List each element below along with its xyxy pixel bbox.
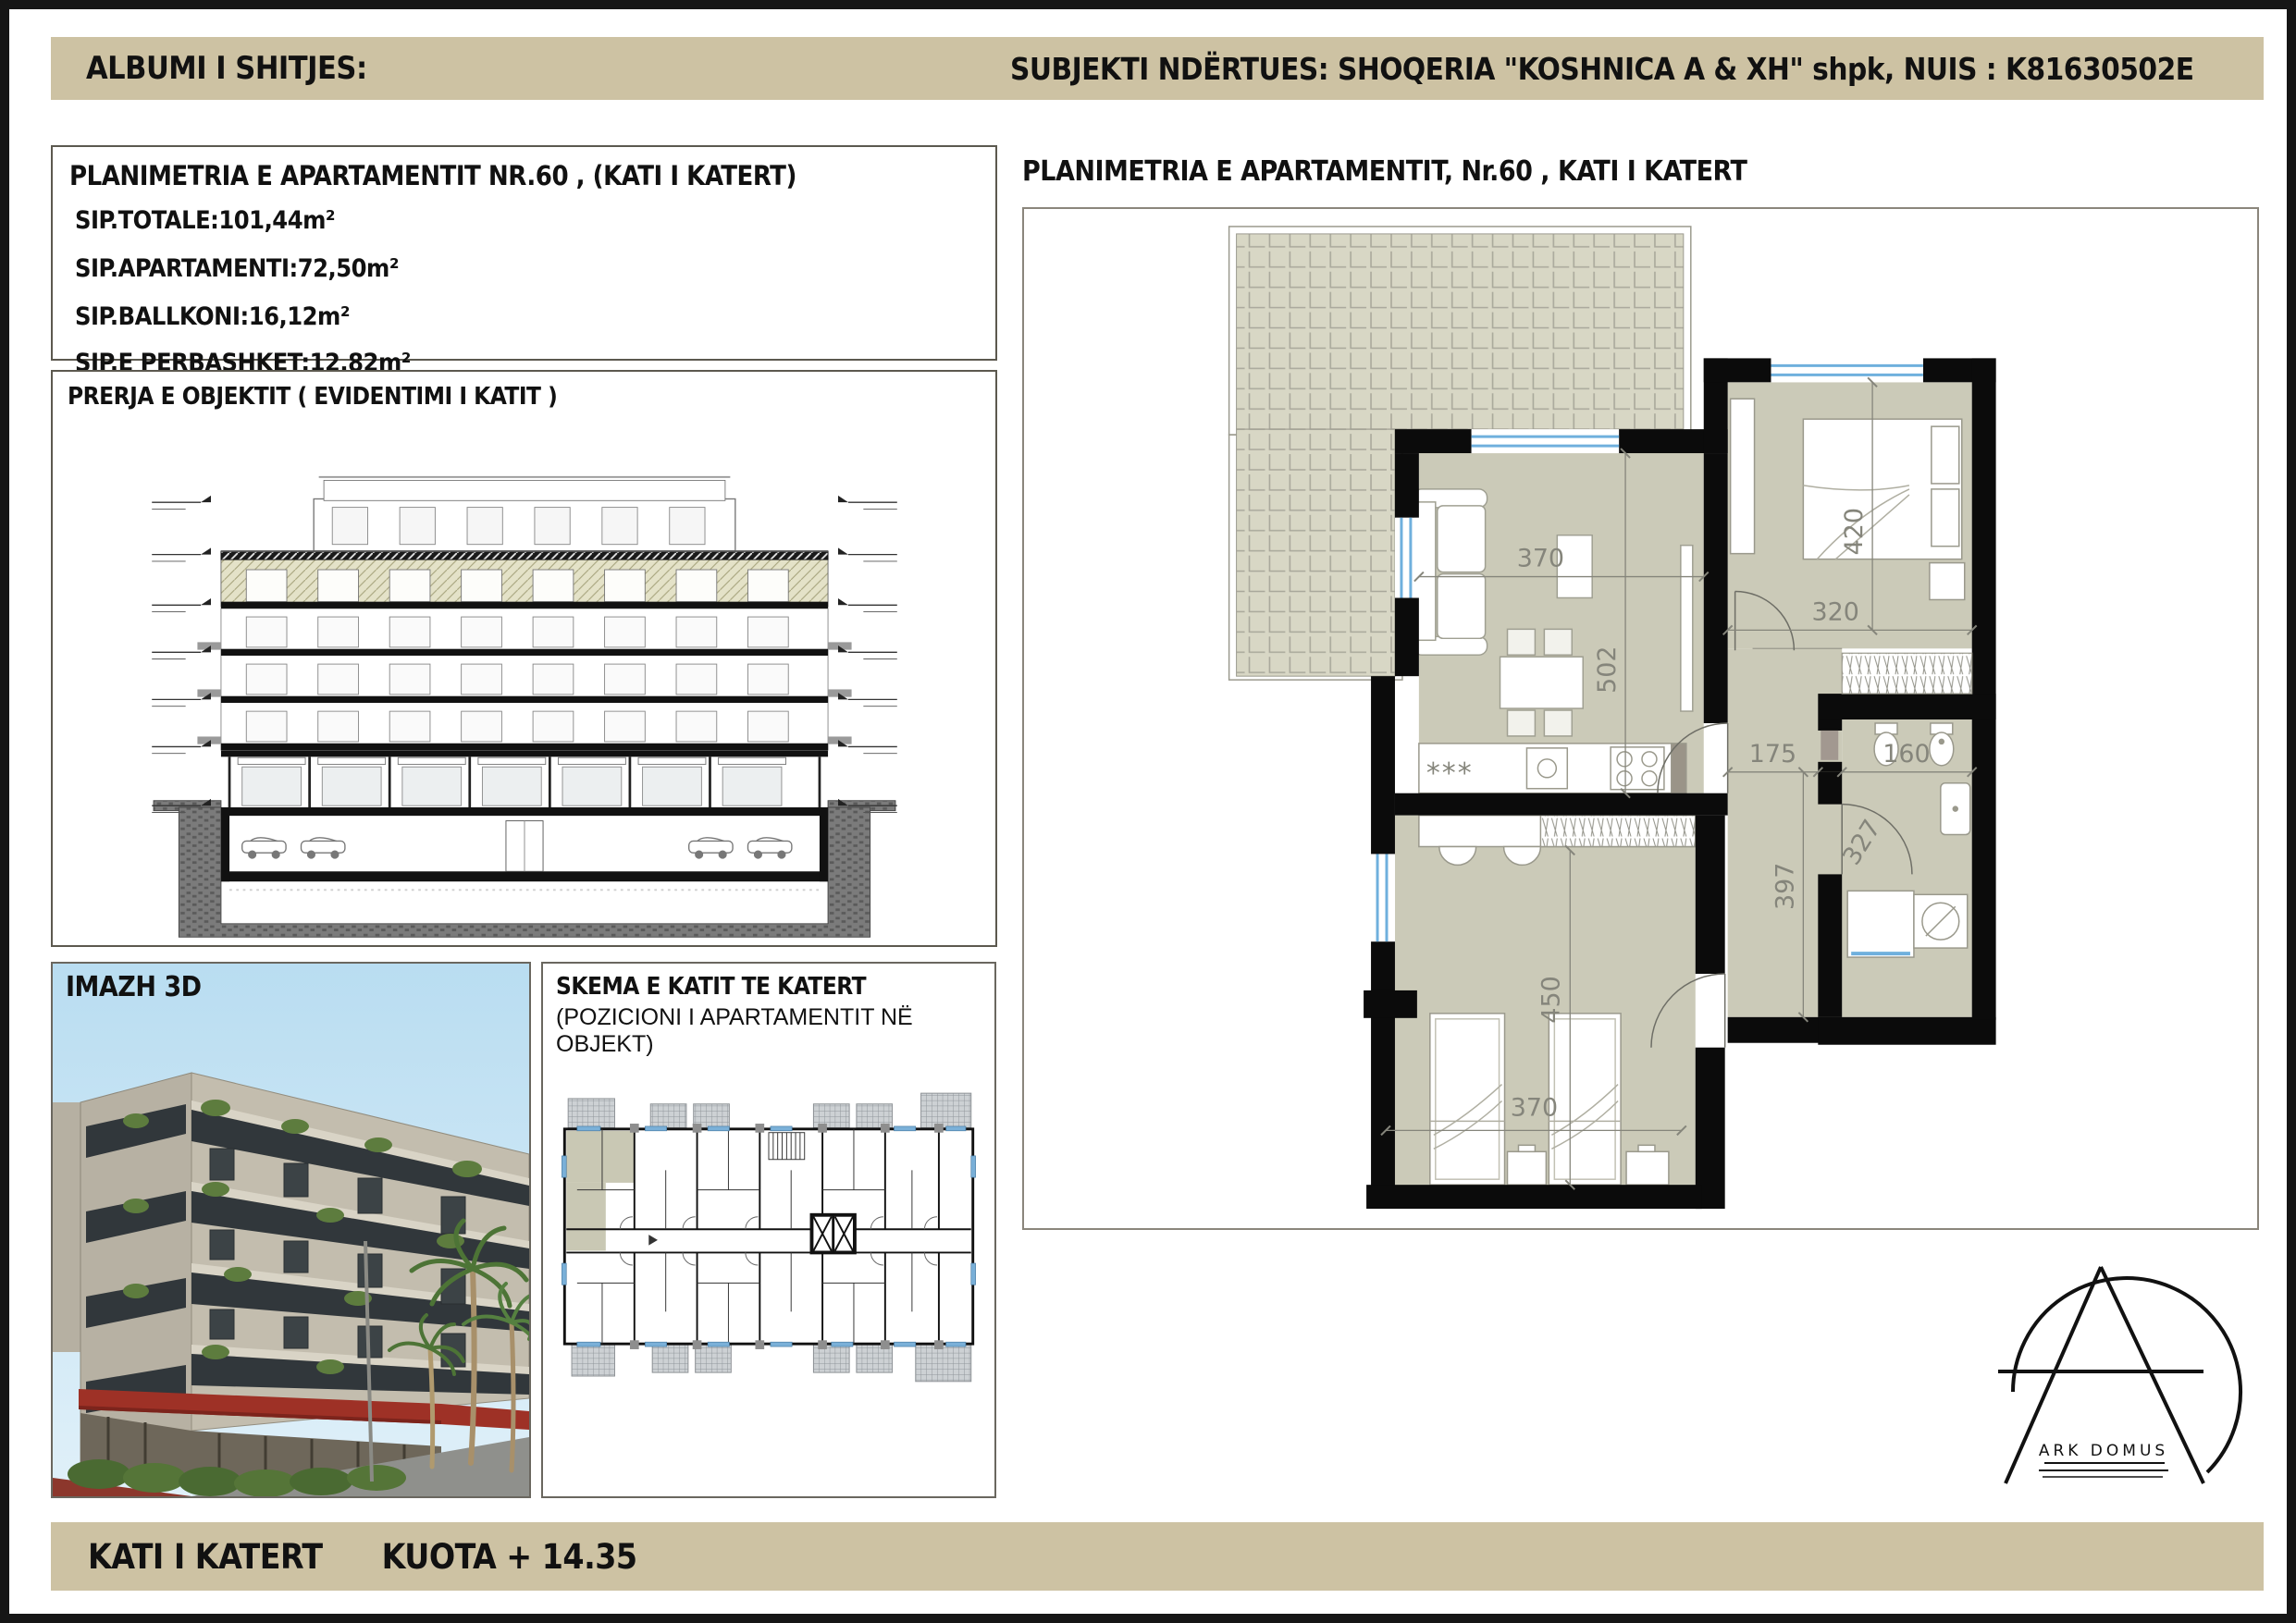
sofa xyxy=(1413,489,1487,655)
header-bar: ALBUMI I SHITJES: SUBJEKTI NDËRTUES: SHO… xyxy=(51,37,2264,100)
penthouse-roof xyxy=(221,477,828,551)
apartment-info-box: PLANIMETRIA E APARTAMENTIT NR.60 , (KATI… xyxy=(51,145,997,361)
render-3d-box: IMAZH 3D xyxy=(51,962,531,1498)
ark-domus-logo: ARK DOMUS xyxy=(1987,1241,2265,1518)
dim-hall-depth: 397 xyxy=(1771,863,1799,910)
area-balcony: SIP.BALLKONI:16,12m² xyxy=(75,302,350,331)
area-apartment: SIP.APARTAMENTI:72,50m² xyxy=(75,254,399,283)
footer-bar: KATI I KATERTKUOTA + 14.35 xyxy=(51,1522,2264,1591)
schema-title: SKEMA E KATIT TE KATERT xyxy=(556,973,866,1001)
floor-schema-drawing xyxy=(545,1084,993,1389)
single-bed xyxy=(1430,1014,1505,1185)
elevator-icon xyxy=(811,1215,854,1253)
apartment-plan-box: *** xyxy=(1022,207,2259,1230)
wardrobe-hatched xyxy=(1842,653,1971,694)
building-section-box: PRERJA E OBJEKTIT ( EVIDENTIMI I KATIT ) xyxy=(51,370,997,947)
typical-floors xyxy=(197,609,851,750)
footer-elevation-label: KUOTA + 14.35 xyxy=(382,1537,637,1577)
single-bed xyxy=(1549,1014,1621,1185)
wc-door-leaf xyxy=(1821,731,1838,760)
plan-title: PLANIMETRIA E APARTAMENTIT, Nr.60 , KATI… xyxy=(1022,155,1747,188)
dim-living-width: 370 xyxy=(1517,545,1564,573)
logo-text: ARK DOMUS xyxy=(2039,1442,2168,1460)
bedroom1-shelf xyxy=(1731,399,1755,553)
dim-bedroom2-width: 370 xyxy=(1511,1093,1558,1122)
building-section-drawing xyxy=(62,418,987,941)
dim-bedroom2-depth: 450 xyxy=(1537,976,1565,1023)
building-3d-render xyxy=(53,964,529,1496)
dim-bedroom1-width: 320 xyxy=(1812,597,1859,626)
dim-bedroom1-depth: 420 xyxy=(1840,508,1869,555)
section-title: PRERJA E OBJEKTIT ( EVIDENTIMI I KATIT ) xyxy=(68,383,557,411)
shower-tray-icon xyxy=(1847,891,1914,957)
album-sheet: ALBUMI I SHITJES: SUBJEKTI NDËRTUES: SHO… xyxy=(0,0,2296,1623)
tv-cabinet xyxy=(1681,546,1693,711)
stairs-icon xyxy=(769,1133,805,1160)
schema-subtitle: (POZICIONI I APARTAMENTIT NË OBJEKT) xyxy=(556,1004,994,1058)
basement xyxy=(221,807,828,881)
ground-floor xyxy=(221,750,828,807)
nightstand xyxy=(1626,1151,1669,1185)
info-title: PLANIMETRIA E APARTAMENTIT NR.60 , (KATI… xyxy=(69,160,796,191)
builder-subject: SUBJEKTI NDËRTUES: SHOQERIA "KOSHNICA A … xyxy=(1010,51,2194,87)
highlighted-fourth-floor xyxy=(221,551,828,609)
apartment-plan-drawing: *** xyxy=(1024,209,2257,1228)
dim-hall-width: 175 xyxy=(1749,740,1796,768)
footer-floor-label: KATI I KATERT xyxy=(88,1537,323,1577)
album-title: ALBUMI I SHITJES: xyxy=(86,50,367,87)
kitchen-stars-label: *** xyxy=(1426,757,1474,790)
dim-living-depth: 502 xyxy=(1593,646,1622,694)
washing-machine-icon xyxy=(1914,894,1968,948)
dim-wc-width: 160 xyxy=(1882,740,1930,768)
nightstand xyxy=(1930,563,1965,600)
nightstand xyxy=(1508,1151,1547,1185)
area-total: SIP.TOTALE:101,44m² xyxy=(75,206,335,235)
bidet-icon xyxy=(1930,723,1954,766)
render-3d-label: IMAZH 3D xyxy=(66,971,202,1003)
floor-schema-box: SKEMA E KATIT TE KATERT (POZICIONI I APA… xyxy=(541,962,996,1498)
